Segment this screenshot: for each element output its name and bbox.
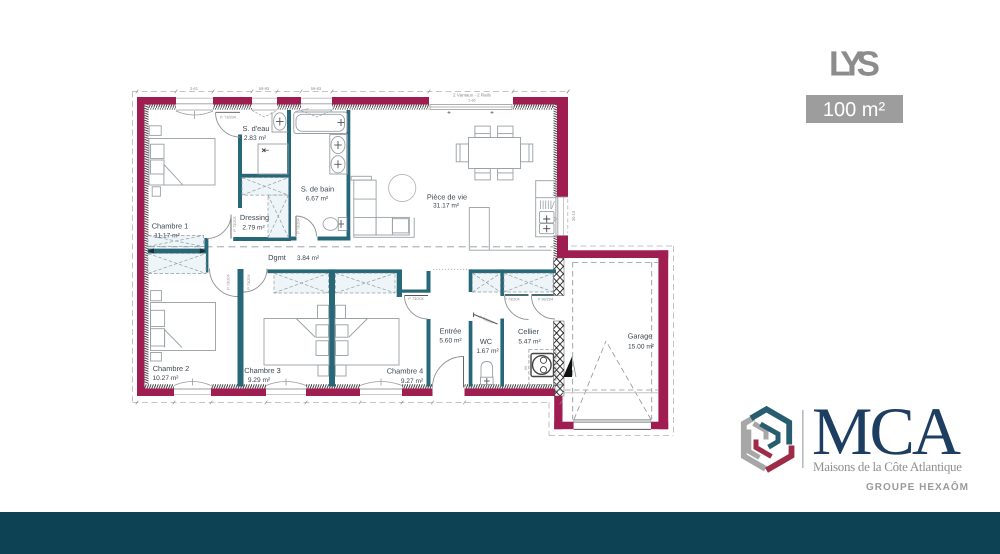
svg-text:31.17 m²: 31.17 m² xyxy=(433,203,460,210)
svg-text:30-10: 30-10 xyxy=(571,210,576,221)
svg-text:Maisons de la Côte Atlantique: Maisons de la Côte Atlantique xyxy=(813,459,962,474)
svg-text:10.27 m²: 10.27 m² xyxy=(152,375,179,382)
svg-text:MCA: MCA xyxy=(812,393,961,469)
svg-text:9.27 m²: 9.27 m² xyxy=(401,378,424,385)
svg-text:Chambre 1: Chambre 1 xyxy=(152,222,189,231)
svg-text:LYS: LYS xyxy=(829,45,880,84)
svg-text:P 73/204: P 73/204 xyxy=(504,298,519,302)
svg-text:S. de bain: S. de bain xyxy=(301,185,334,194)
svg-text:GROUPE HEXAÔM: GROUPE HEXAÔM xyxy=(866,481,969,493)
svg-text:1.67 m²: 1.67 m² xyxy=(476,348,499,355)
svg-text:59-93: 59-93 xyxy=(259,86,270,91)
svg-text:Dgmt: Dgmt xyxy=(268,253,286,262)
svg-text:Entrée: Entrée xyxy=(440,327,462,336)
svg-text:5.47 m²: 5.47 m² xyxy=(518,339,541,346)
svg-text:Cellier: Cellier xyxy=(518,327,539,336)
svg-text:2 Vantaux - 2 Rails: 2 Vantaux - 2 Rails xyxy=(453,93,491,98)
svg-text:S. d'eau: S. d'eau xyxy=(243,124,270,133)
svg-text:11.17 m²: 11.17 m² xyxy=(154,233,180,240)
svg-text:Chambre 3: Chambre 3 xyxy=(244,366,281,375)
svg-text:P 73/204: P 73/204 xyxy=(227,274,231,289)
svg-text:6.67 m²: 6.67 m² xyxy=(306,196,329,203)
svg-text:P 73/204: P 73/204 xyxy=(233,216,237,231)
svg-text:WC: WC xyxy=(480,337,493,346)
svg-text:P 73/204: P 73/204 xyxy=(408,297,423,301)
svg-text:2-60: 2-60 xyxy=(468,99,475,103)
svg-text:60: 60 xyxy=(524,366,528,370)
svg-text:15.00 m²: 15.00 m² xyxy=(628,344,655,351)
svg-text:5.60 m²: 5.60 m² xyxy=(439,338,462,345)
svg-text:3.84 m²: 3.84 m² xyxy=(297,255,320,262)
svg-text:Dressing: Dressing xyxy=(240,213,269,222)
svg-text:59-93: 59-93 xyxy=(311,86,322,91)
svg-text:2-61: 2-61 xyxy=(190,86,199,91)
svg-text:Garage: Garage xyxy=(628,332,653,341)
svg-text:P. 73/204: P. 73/204 xyxy=(220,116,236,120)
svg-text:9.29 m²: 9.29 m² xyxy=(248,377,271,384)
svg-text:Chambre 4: Chambre 4 xyxy=(387,367,424,376)
svg-text:P 73/204: P 73/204 xyxy=(297,218,301,233)
svg-text:P 73/204: P 73/204 xyxy=(247,274,251,289)
svg-text:100 m²: 100 m² xyxy=(823,99,886,121)
svg-text:2.83 m²: 2.83 m² xyxy=(244,135,267,142)
svg-text:Pièce de vie: Pièce de vie xyxy=(427,193,467,202)
svg-text:Chambre 2: Chambre 2 xyxy=(153,364,190,373)
svg-text:2.79 m²: 2.79 m² xyxy=(242,225,265,232)
svg-text:P 93/204: P 93/204 xyxy=(538,298,553,302)
